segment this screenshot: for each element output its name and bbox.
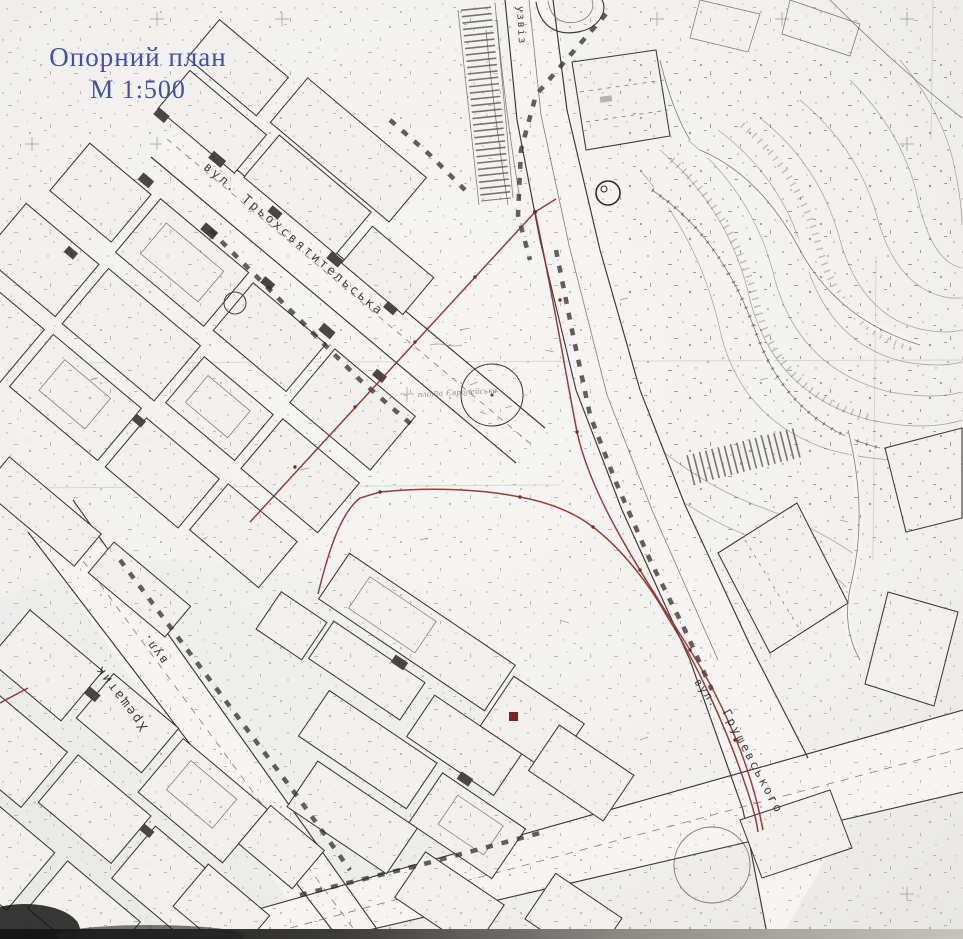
park-extra-noise xyxy=(620,60,963,540)
scanned-plan-photo: вул. Трьохсвятительська вул. Хрещатик ву… xyxy=(0,0,963,939)
plan-drawing: вул. Трьохсвятительська вул. Хрещатик ву… xyxy=(0,0,963,939)
